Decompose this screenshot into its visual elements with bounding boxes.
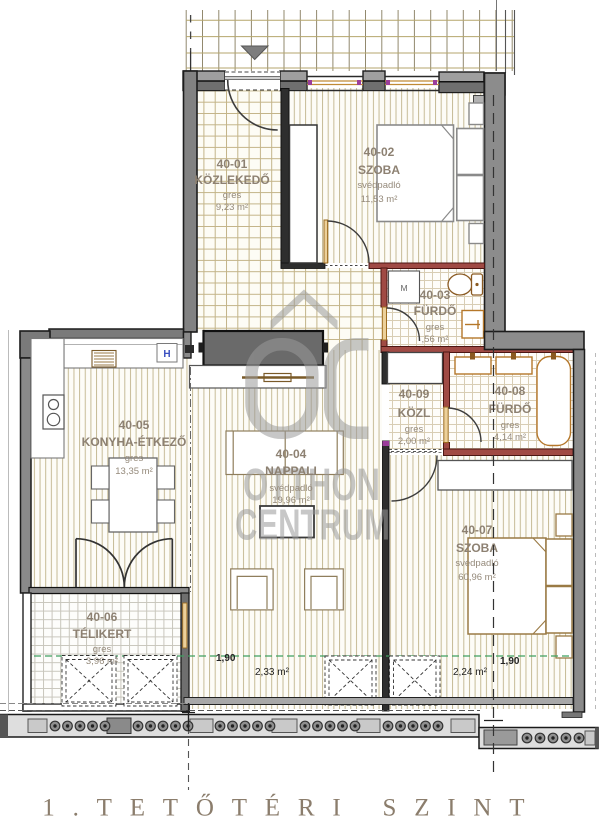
svg-text:KONYHA-ÉTKEZŐ: KONYHA-ÉTKEZŐ bbox=[82, 434, 187, 449]
svg-text:SZOBA: SZOBA bbox=[358, 163, 400, 177]
svg-text:svédpadló: svédpadló bbox=[455, 558, 498, 569]
svg-text:M: M bbox=[400, 283, 407, 293]
svg-text:NAPPALI: NAPPALI bbox=[265, 464, 317, 478]
svg-text:svédpadló: svédpadló bbox=[269, 483, 312, 494]
svg-text:9,23 m²: 9,23 m² bbox=[216, 202, 248, 213]
svg-text:2,33 m²: 2,33 m² bbox=[255, 667, 290, 678]
svg-text:40-01: 40-01 bbox=[217, 157, 248, 171]
svg-text:gres: gres bbox=[426, 322, 445, 333]
svg-text:3,96 m²: 3,96 m² bbox=[86, 656, 118, 667]
svg-text:FÜRDŐ: FÜRDŐ bbox=[414, 303, 457, 318]
svg-text:19,96 m²: 19,96 m² bbox=[272, 495, 310, 506]
svg-text:KÖZLEKEDŐ: KÖZLEKEDŐ bbox=[194, 172, 269, 187]
svg-text:40-07: 40-07 bbox=[462, 523, 493, 537]
svg-text:2,24 m²: 2,24 m² bbox=[453, 667, 488, 678]
svg-text:40-02: 40-02 bbox=[364, 145, 395, 159]
svg-text:40-08: 40-08 bbox=[495, 384, 526, 398]
svg-text:2,00 m²: 2,00 m² bbox=[398, 436, 430, 447]
svg-text:40-06: 40-06 bbox=[87, 610, 118, 624]
svg-text:40-05: 40-05 bbox=[119, 418, 150, 432]
svg-text:60,96 m²: 60,96 m² bbox=[458, 572, 496, 583]
svg-text:1,90: 1,90 bbox=[216, 653, 236, 664]
svg-text:gres: gres bbox=[125, 453, 144, 464]
svg-text:13,35 m²: 13,35 m² bbox=[115, 466, 153, 477]
svg-text:H: H bbox=[163, 349, 170, 360]
svg-text:40-03: 40-03 bbox=[420, 288, 451, 302]
svg-text:40-09: 40-09 bbox=[399, 387, 430, 401]
svg-text:gres: gres bbox=[405, 424, 424, 435]
svg-text:gres: gres bbox=[93, 644, 112, 655]
svg-text:TÉLIKERT: TÉLIKERT bbox=[73, 626, 132, 641]
svg-text:,56 m²: ,56 m² bbox=[422, 334, 449, 345]
svg-text:gres: gres bbox=[223, 190, 242, 201]
svg-text:svédpadló: svédpadló bbox=[357, 180, 400, 191]
svg-text:FÜRDŐ: FÜRDŐ bbox=[489, 401, 532, 416]
svg-text:1.TETŐTÉRI SZINT: 1.TETŐTÉRI SZINT bbox=[42, 794, 542, 822]
svg-text:CENTRUM: CENTRUM bbox=[235, 501, 390, 550]
svg-text:1,90: 1,90 bbox=[500, 656, 520, 667]
svg-text:SZOBA: SZOBA bbox=[456, 541, 498, 555]
svg-text:4,14 m²: 4,14 m² bbox=[494, 432, 526, 443]
svg-text:11,53 m²: 11,53 m² bbox=[361, 194, 398, 205]
svg-text:KÖZL: KÖZL bbox=[398, 405, 431, 420]
svg-text:40-04: 40-04 bbox=[276, 447, 307, 461]
svg-text:gres: gres bbox=[501, 420, 520, 431]
